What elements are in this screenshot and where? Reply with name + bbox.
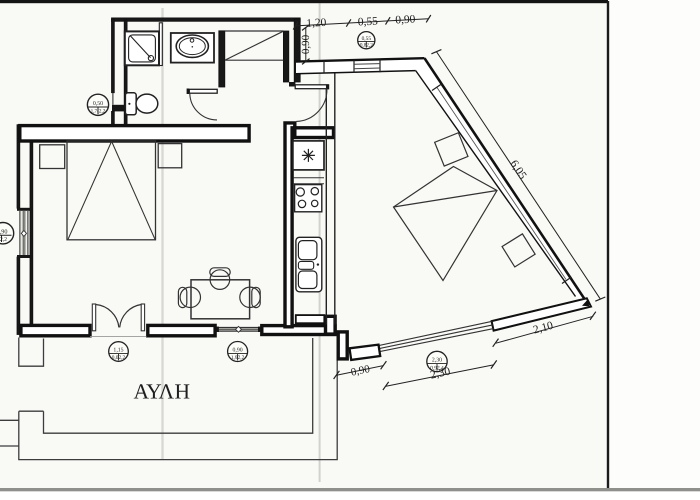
svg-text:0,82,2: 0,82,2 bbox=[360, 43, 373, 49]
svg-text:0,02,2: 0,02,2 bbox=[112, 355, 126, 361]
svg-text:1,15: 1,15 bbox=[113, 348, 123, 354]
svg-text:1,7(2,2: 1,7(2,2 bbox=[91, 108, 106, 114]
svg-text:1,20: 1,20 bbox=[306, 17, 327, 30]
svg-text:0,90: 0,90 bbox=[0, 228, 7, 235]
svg-text:ΑΥΛΗ: ΑΥΛΗ bbox=[134, 380, 191, 404]
svg-text:0,90: 0,90 bbox=[300, 34, 312, 54]
svg-text:0,90: 0,90 bbox=[395, 13, 416, 26]
svg-text:0,90: 0,90 bbox=[233, 348, 243, 354]
svg-text:0,55: 0,55 bbox=[362, 36, 372, 42]
svg-text:2,30: 2,30 bbox=[432, 358, 442, 364]
svg-text:82,2: 82,2 bbox=[0, 237, 7, 243]
svg-text:0,50: 0,50 bbox=[93, 101, 103, 107]
svg-text:0,55: 0,55 bbox=[357, 15, 378, 28]
svg-text:1,92,2: 1,92,2 bbox=[231, 355, 245, 361]
